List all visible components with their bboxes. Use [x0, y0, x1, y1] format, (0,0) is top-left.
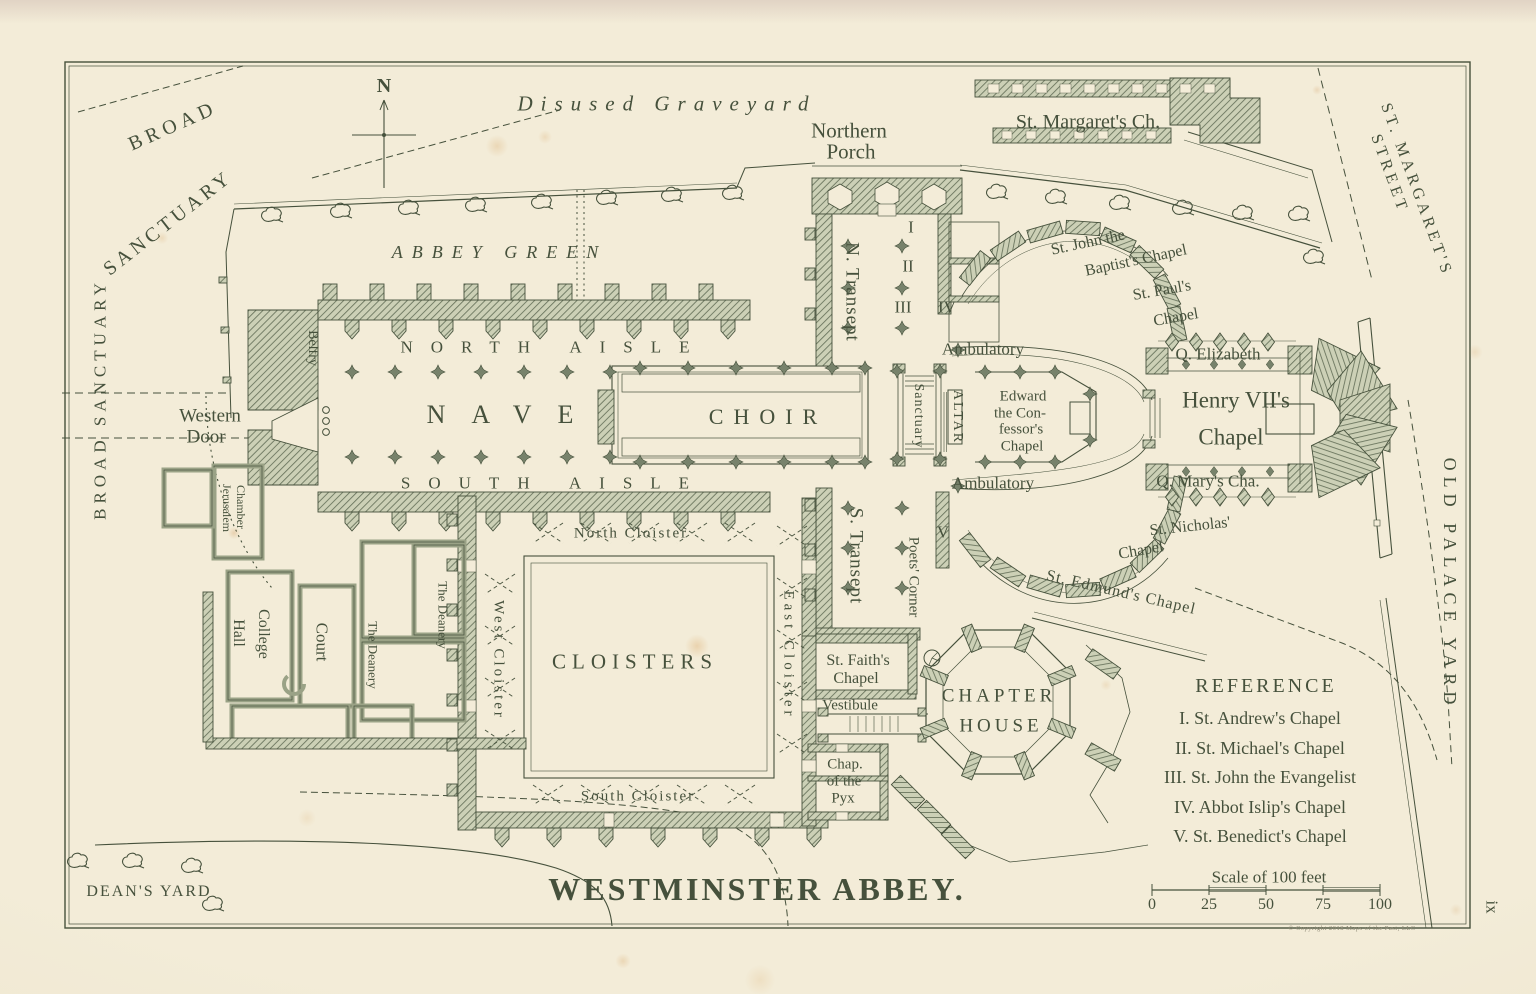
labels-layer: WESTMINSTER ABBEY. N REFERENCE I. St. An…: [0, 0, 1536, 994]
the-deanery-upper-label: The Deanery: [437, 581, 450, 649]
page-number: ix: [1484, 900, 1501, 913]
deans-yard-label: DEAN'S YARD: [86, 884, 211, 900]
st-margarets-church-label: St. Margaret's Ch.: [1016, 112, 1160, 132]
st-edmunds-label: St. Edmund's Chapel: [1044, 568, 1197, 618]
scale-tick-25: 25: [1201, 897, 1217, 913]
south-aisle-label: SOUTH AISLE: [401, 475, 707, 492]
cloisters-label: CLOISTERS: [552, 652, 718, 673]
vestibule-label: Vestibule: [822, 699, 878, 714]
chapel-numeral-i-label: I: [908, 219, 914, 236]
south-transept-label: S. Transept: [846, 508, 865, 605]
chapel-pyx-3-label: Pyx: [831, 792, 854, 807]
disused-graveyard-label: Disused Graveyard: [517, 94, 816, 115]
jerusalem-chamber-1-label: Jerusalem: [221, 484, 233, 532]
st-nicholas-1-label: St. Nicholas': [1149, 515, 1231, 539]
chapel-numeral-iii-label: III: [895, 299, 912, 316]
chapel-numeral-iv-label: IV: [938, 299, 956, 316]
court-label: Court: [314, 623, 331, 662]
choir-label: CHOIR: [709, 406, 827, 428]
west-cloister-label: West Cloister: [490, 600, 505, 720]
scale-tick-75: 75: [1315, 897, 1331, 913]
chapter-house-2-label: HOUSE: [959, 717, 1042, 736]
henry-vii-2-label: Chapel: [1198, 426, 1263, 449]
reference-item-1: I. St. Andrew's Chapel: [1179, 709, 1341, 727]
poets-corner-label: Poets' Corner: [906, 537, 921, 618]
broad-sanctuary-west-label: BROAD SANCTUARY: [91, 278, 108, 520]
copyright-note: © Copyright 2018 Maps of the Past, LLC: [1288, 925, 1415, 932]
north-aisle-label: NORTH AISLE: [400, 339, 707, 356]
altar-label: ALTAR: [950, 390, 964, 444]
abbey-green-label: ABBEY GREEN: [392, 243, 607, 261]
east-cloister-label: East Cloister: [781, 590, 796, 719]
reference-item-3: III. St. John the Evangelist: [1164, 768, 1356, 786]
north-cloister-label: North Cloister: [574, 527, 688, 542]
chapel-numeral-v-label: V: [937, 524, 949, 541]
scale-tick-50: 50: [1258, 897, 1274, 913]
chapel-pyx-1-label: Chap.: [827, 758, 862, 773]
the-deanery-lower-label: The Deanery: [367, 621, 380, 689]
st-john-baptist-1-label: St. John the: [1050, 227, 1127, 258]
western-door-1-label: Western: [179, 407, 241, 426]
chapter-house-1-label: CHAPTER: [942, 687, 1057, 706]
sanctuary-label: Sanctuary: [911, 384, 925, 449]
jerusalem-chamber-2-label: Chamber: [235, 485, 247, 529]
reference-title: REFERENCE: [1195, 676, 1336, 696]
chapel-numeral-ii-label: II: [902, 258, 913, 275]
ambulatory-north-label: Ambulatory: [942, 341, 1024, 358]
compass-north-label: N: [377, 76, 391, 96]
reference-item-4: IV. Abbot Islip's Chapel: [1174, 798, 1346, 816]
q-marys-label: Q. Mary's Cha.: [1156, 473, 1259, 490]
st-pauls-1-label: St. Paul's: [1132, 278, 1193, 304]
reference-item-5: V. St. Benedict's Chapel: [1173, 827, 1346, 845]
broad-sanctuary-upper-1-label: BROAD: [125, 98, 220, 155]
broad-sanctuary-upper-2-label: SANCTUARY: [100, 167, 236, 280]
st-faiths-1-label: St. Faith's: [826, 653, 889, 669]
chapel-pyx-2-label: of the: [827, 775, 862, 790]
south-cloister-label: South Cloister: [581, 790, 695, 805]
q-elizabeth-label: Q. Elizabeth: [1176, 346, 1261, 363]
old-palace-yard-label: OLD PALACE YARD: [1441, 458, 1459, 711]
scale-tick-0: 0: [1148, 897, 1156, 913]
st-pauls-2-label: Chapel: [1152, 306, 1199, 330]
ambulatory-south-label: Ambulatory: [952, 475, 1034, 492]
western-door-2-label: Door: [186, 428, 225, 447]
north-transept-label: N. Transept: [842, 242, 861, 342]
edward-confessor-1-label: Edward: [1000, 390, 1047, 405]
reference-item-2: II. St. Michael's Chapel: [1175, 739, 1345, 757]
henry-vii-1-label: Henry VII's: [1182, 389, 1290, 412]
college-hall-1-label: College: [255, 609, 271, 659]
map-page: WESTMINSTER ABBEY. N REFERENCE I. St. An…: [0, 0, 1536, 994]
st-nicholas-2-label: Chapel: [1117, 539, 1164, 563]
northern-porch-2-label: Porch: [827, 142, 876, 163]
edward-confessor-3-label: fessor's: [999, 423, 1043, 438]
scale-tick-100: 100: [1368, 897, 1392, 913]
nave-label: NAVE: [427, 402, 600, 428]
edward-confessor-2-label: the Con-: [994, 407, 1046, 422]
scale-caption: Scale of 100 feet: [1212, 869, 1327, 886]
st-faiths-2-label: Chapel: [833, 671, 878, 687]
northern-porch-1-label: Northern: [811, 121, 887, 142]
belfry-label: Belfry: [305, 330, 319, 366]
edward-confessor-4-label: Chapel: [1001, 440, 1044, 455]
map-title: WESTMINSTER ABBEY.: [548, 873, 965, 905]
college-hall-2-label: Hall: [230, 619, 246, 647]
